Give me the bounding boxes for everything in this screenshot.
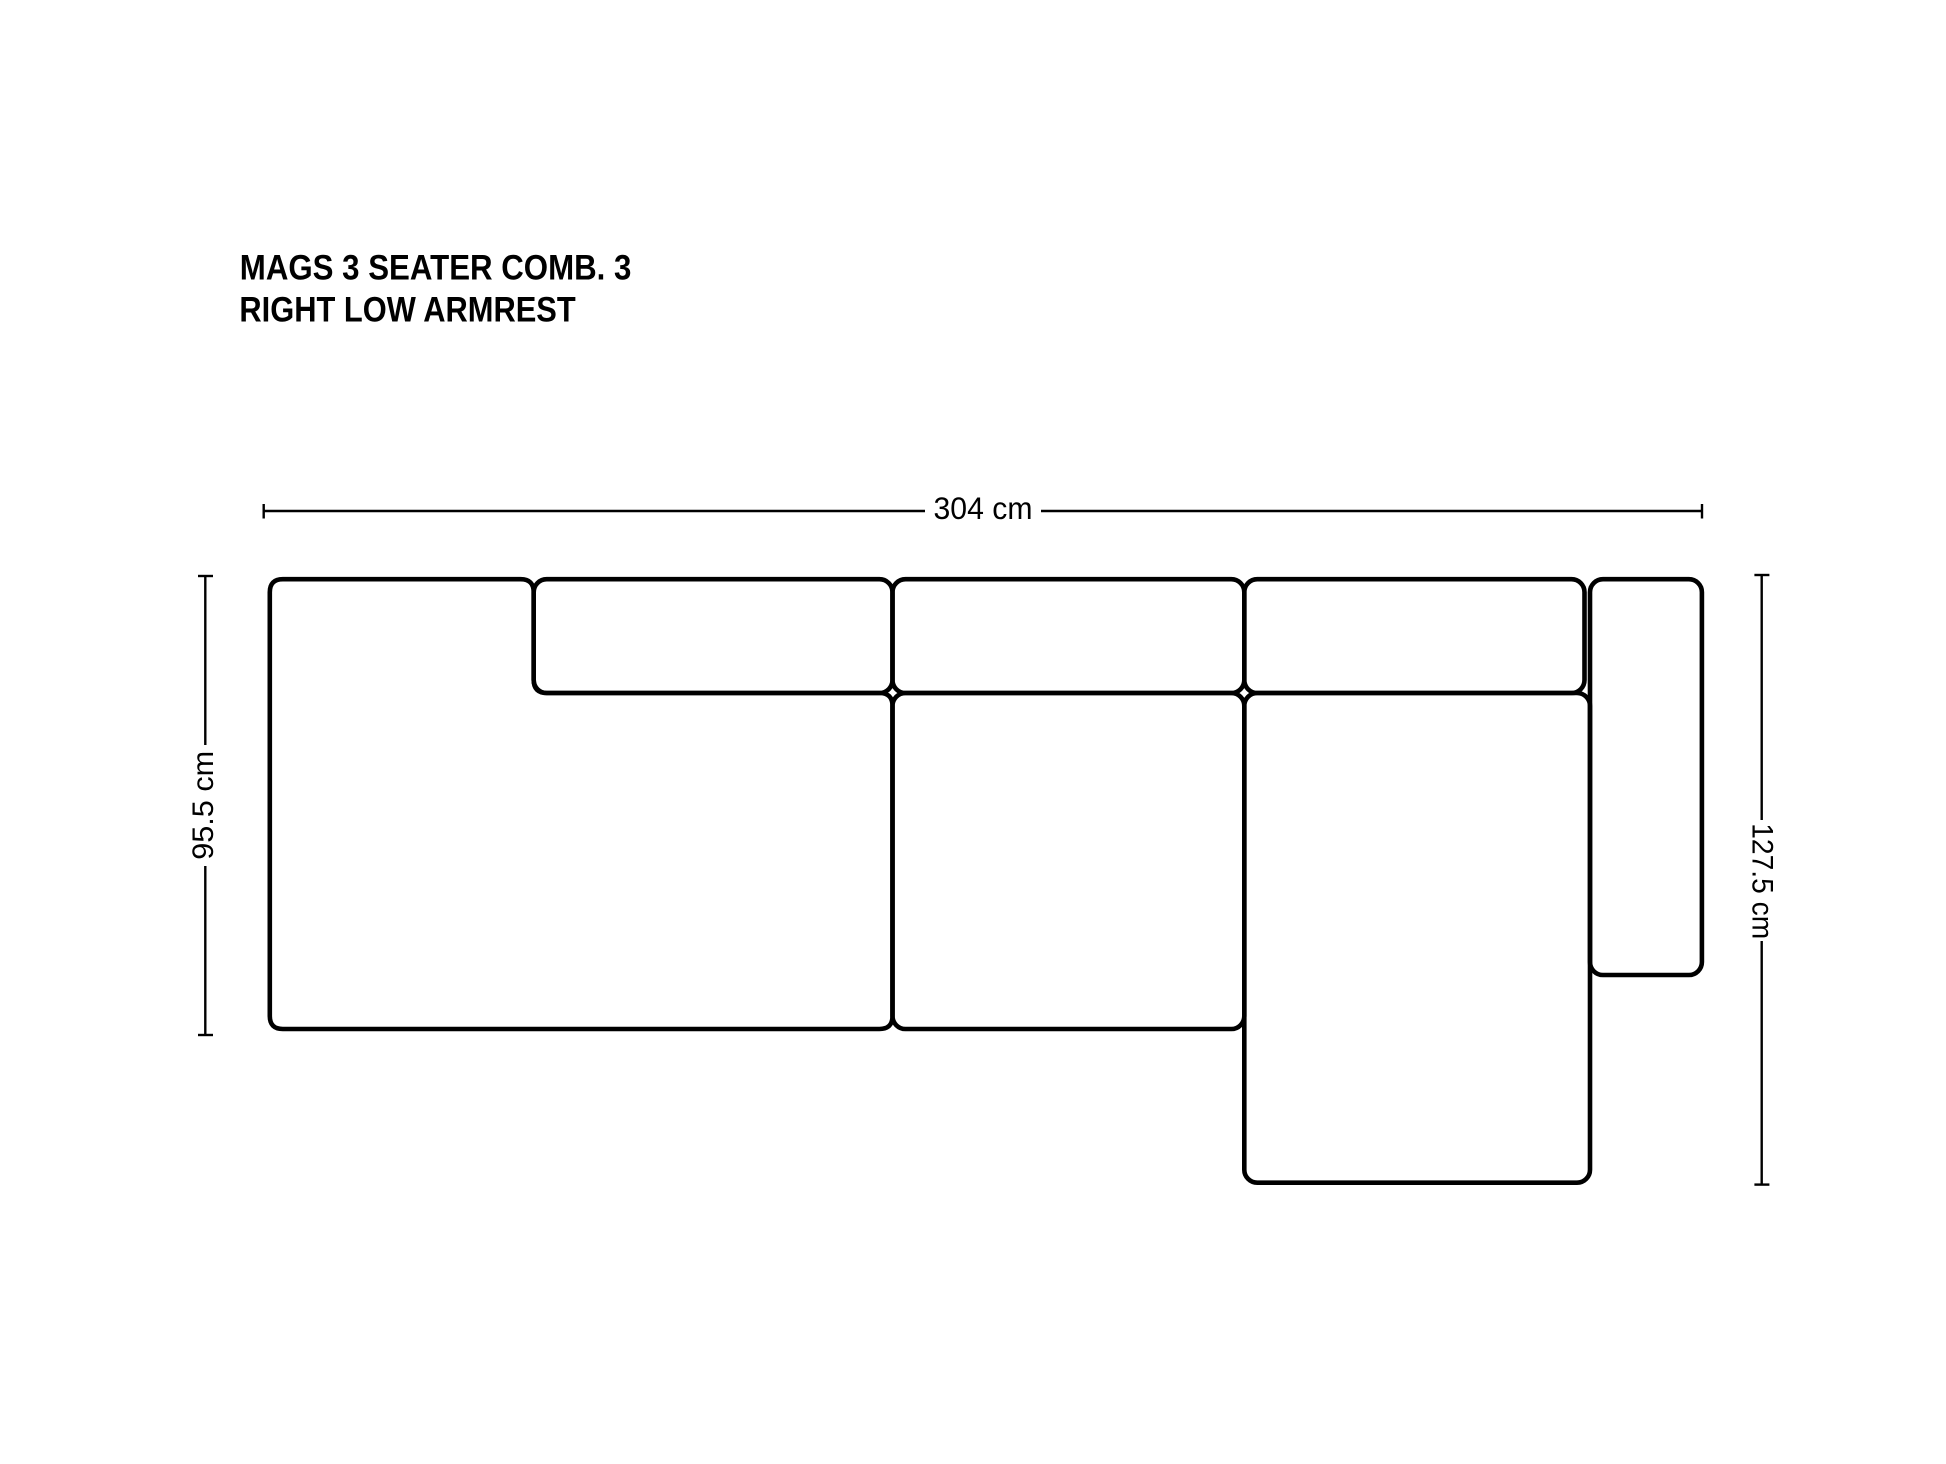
svg-text:95.5 cm: 95.5 cm [187, 751, 220, 860]
svg-text:RIGHT LOW ARMREST: RIGHT LOW ARMREST [239, 291, 576, 330]
svg-text:MAGS 3 SEATER COMB. 3: MAGS 3 SEATER COMB. 3 [240, 249, 632, 288]
svg-text:304 cm: 304 cm [934, 491, 1033, 526]
svg-text:127.5 cm: 127.5 cm [1745, 823, 1778, 939]
